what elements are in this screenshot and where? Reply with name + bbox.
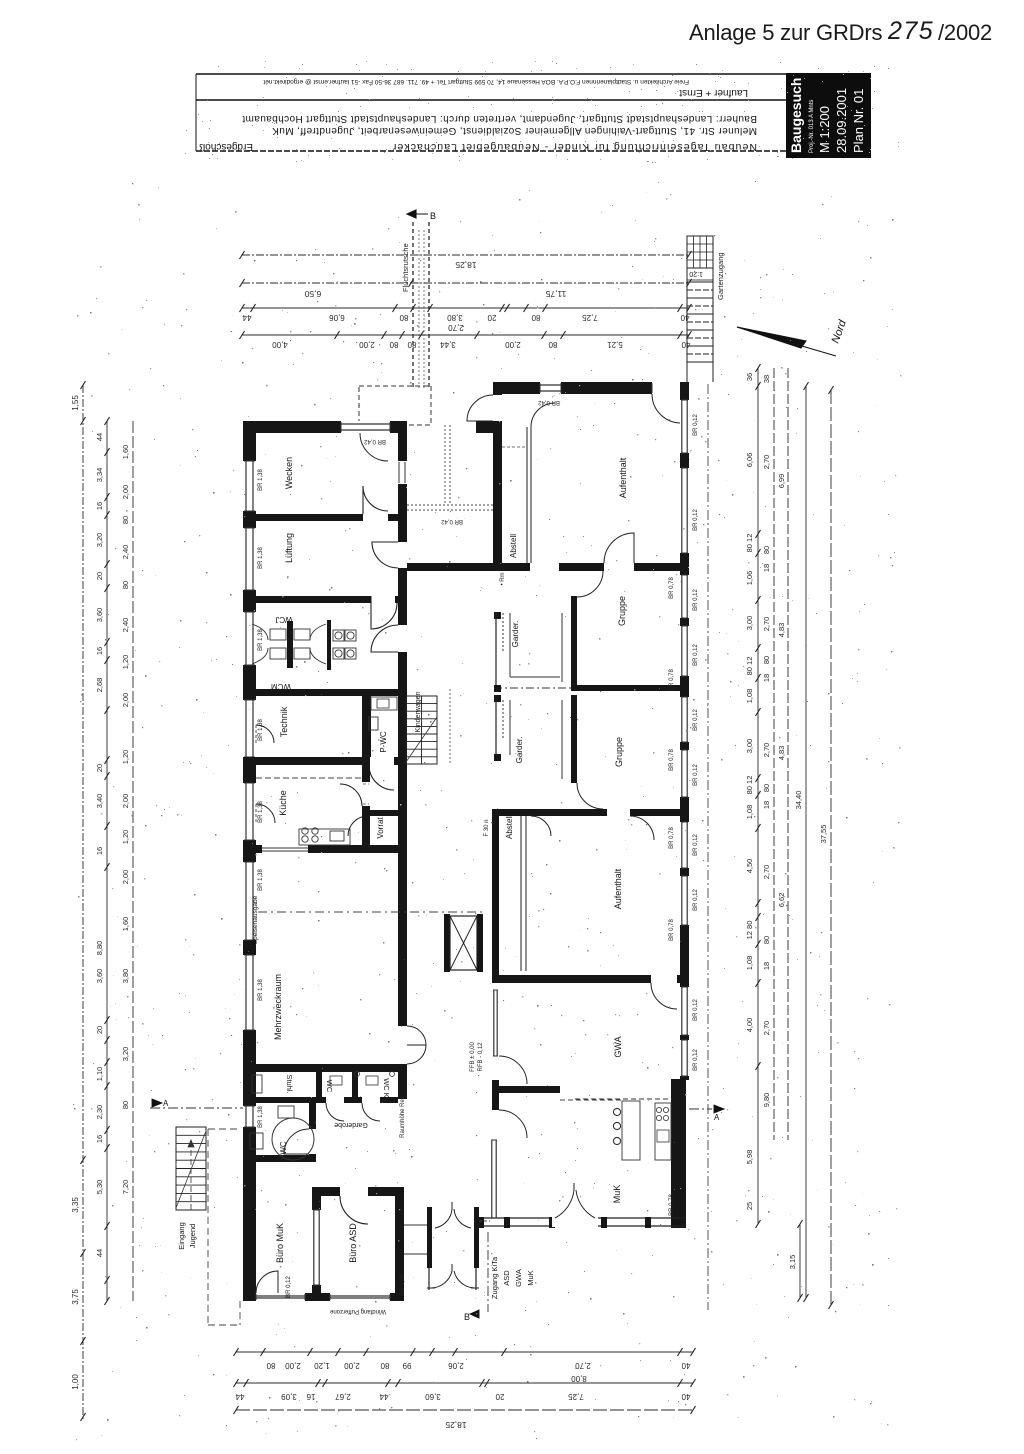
svg-text:WCM: WCM — [271, 682, 291, 691]
svg-text:Plan Nr. 01: Plan Nr. 01 — [851, 89, 866, 153]
svg-text:RFB - 0,12: RFB - 0,12 — [478, 1042, 484, 1072]
svg-text:3,15: 3,15 — [788, 1255, 797, 1270]
svg-text:5,21: 5,21 — [607, 340, 623, 349]
svg-text:16: 16 — [95, 847, 104, 855]
svg-text:1,08: 1,08 — [745, 956, 754, 971]
svg-text:3,00: 3,00 — [745, 616, 754, 631]
svg-text:20: 20 — [95, 572, 104, 580]
svg-text:F 30 n: F 30 n — [484, 819, 490, 836]
svg-text:20: 20 — [95, 764, 104, 772]
svg-text:80: 80 — [548, 340, 557, 349]
svg-text:2,70: 2,70 — [762, 455, 771, 470]
svg-text:Windfang Pufferzone: Windfang Pufferzone — [329, 1308, 386, 1314]
svg-text:2,00: 2,00 — [505, 340, 521, 349]
svg-text:MuK: MuK — [612, 1185, 622, 1204]
svg-text:6,50: 6,50 — [304, 289, 321, 299]
svg-text:2,70: 2,70 — [448, 323, 464, 332]
svg-text:8,00: 8,00 — [571, 1374, 587, 1383]
svg-text:2,00: 2,00 — [121, 485, 130, 500]
svg-text:Vorrat: Vorrat — [376, 817, 385, 839]
svg-text:Eingang: Eingang — [177, 1222, 186, 1250]
svg-text:Meluner Str. 41, Stuttgart-Vai: Meluner Str. 41, Stuttgart-Vaihingen All… — [272, 125, 757, 136]
svg-text:Garderobe: Garderobe — [334, 1121, 368, 1128]
svg-text:6,06: 6,06 — [745, 453, 754, 468]
svg-text:80: 80 — [762, 936, 771, 944]
svg-text:36: 36 — [745, 373, 754, 381]
svg-text:Aufenthalt: Aufenthalt — [618, 457, 628, 498]
svg-text:Speisenausgabe: Speisenausgabe — [252, 895, 259, 944]
svg-text:Büro MuK: Büro MuK — [275, 1223, 285, 1263]
svg-text:80: 80 — [407, 340, 416, 349]
svg-text:18: 18 — [762, 801, 771, 809]
svg-text:2,40: 2,40 — [121, 618, 130, 633]
svg-text:BR 0,12: BR 0,12 — [693, 889, 699, 911]
svg-text:Bauherr: Landeshauptstadt Stut: Bauherr: Landeshauptstadt Stuttgart, Jug… — [242, 113, 757, 124]
svg-text:BR 0,12: BR 0,12 — [693, 764, 699, 786]
svg-text:3,60: 3,60 — [425, 1392, 441, 1401]
svg-text:80: 80 — [399, 313, 408, 322]
svg-text:1,06: 1,06 — [745, 571, 754, 586]
svg-text:Garder.: Garder. — [511, 621, 520, 648]
svg-text:11,75: 11,75 — [545, 289, 566, 299]
svg-text:2,70: 2,70 — [575, 1361, 591, 1370]
svg-text:BR 0,42: BR 0,42 — [364, 438, 386, 444]
svg-text:40: 40 — [681, 340, 690, 349]
svg-text:40: 40 — [681, 1392, 690, 1401]
svg-text:4,00: 4,00 — [272, 340, 288, 349]
svg-text:99: 99 — [402, 1361, 411, 1370]
svg-text:7,25: 7,25 — [568, 1392, 584, 1401]
svg-text:P-WC: P-WC — [379, 731, 388, 753]
svg-text:A: A — [163, 1099, 169, 1108]
svg-text:MuK: MuK — [526, 1270, 535, 1285]
svg-text:2,68: 2,68 — [95, 678, 104, 693]
svg-text:4,50: 4,50 — [745, 859, 754, 874]
svg-text:3,34: 3,34 — [95, 468, 104, 483]
svg-text:BR 0,78: BR 0,78 — [669, 577, 675, 599]
svg-text:3,00: 3,00 — [745, 739, 754, 754]
svg-text:BR 1,38: BR 1,38 — [258, 1106, 264, 1128]
svg-text:3,60: 3,60 — [95, 608, 104, 623]
svg-text:7,20: 7,20 — [121, 1180, 130, 1195]
svg-text:Lüftung: Lüftung — [284, 533, 294, 563]
svg-text:/2002: /2002 — [938, 20, 992, 45]
svg-text:3,75: 3,75 — [71, 1289, 80, 1305]
svg-text:1,20: 1,20 — [121, 830, 130, 845]
svg-text:38: 38 — [762, 375, 771, 383]
svg-text:44: 44 — [242, 313, 251, 322]
svg-text:3,20: 3,20 — [95, 533, 104, 548]
svg-text:B: B — [430, 211, 436, 221]
svg-text:Garder.: Garder. — [515, 737, 524, 764]
svg-text:Anlage 5 zur GRDrs: Anlage 5 zur GRDrs — [689, 20, 882, 45]
svg-text:BR 0,12: BR 0,12 — [286, 1276, 292, 1298]
svg-text:BR 0,78: BR 0,78 — [669, 919, 675, 941]
svg-text:WCJ: WCJ — [275, 615, 292, 624]
svg-text:80: 80 — [531, 313, 540, 322]
svg-text:5,98: 5,98 — [745, 1150, 754, 1165]
svg-text:Büro ASD: Büro ASD — [348, 1223, 358, 1263]
svg-text:BR 0,12: BR 0,12 — [693, 589, 699, 611]
svg-text:3,40: 3,40 — [95, 794, 104, 809]
svg-text:1,55: 1,55 — [71, 395, 80, 411]
svg-text:25: 25 — [745, 1202, 754, 1210]
svg-text:BR 0,12: BR 0,12 — [693, 709, 699, 731]
svg-text:Kinderwagen: Kinderwagen — [415, 691, 422, 732]
svg-text:18,25: 18,25 — [445, 1420, 467, 1430]
svg-text:BR 0,78: BR 0,78 — [669, 827, 675, 849]
svg-text:BR 0,78: BR 0,78 — [669, 1194, 675, 1216]
svg-text:8,80: 8,80 — [95, 941, 104, 956]
svg-text:12 80: 12 80 — [745, 921, 754, 940]
svg-text:BR 0,78: BR 0,78 — [669, 749, 675, 771]
svg-text:BR 0,42: BR 0,42 — [441, 518, 463, 524]
svg-text:Proj.-Nr. 013 A Mnts: Proj.-Nr. 013 A Mnts — [809, 100, 815, 153]
svg-text:4,83: 4,83 — [777, 623, 786, 638]
svg-text:Baugesuch: Baugesuch — [788, 78, 804, 153]
svg-text:1,20: 1,20 — [121, 750, 130, 765]
svg-text:3,20: 3,20 — [121, 1047, 130, 1062]
svg-text:M 1:200: M 1:200 — [817, 106, 832, 153]
svg-text:80: 80 — [762, 656, 771, 664]
svg-text:34,40: 34,40 — [794, 791, 803, 810]
svg-text:Abstell: Abstell — [505, 815, 514, 839]
svg-text:80: 80 — [380, 1361, 389, 1370]
svg-text:Freie Architekten u. Stadtplan: Freie Architekten u. Stadtplanerinnen F.… — [263, 78, 689, 85]
svg-text:20: 20 — [487, 313, 496, 322]
svg-text:2,00: 2,00 — [121, 794, 130, 809]
svg-text:2,70: 2,70 — [762, 865, 771, 880]
svg-text:16: 16 — [95, 1135, 104, 1143]
svg-text:1,20: 1,20 — [121, 655, 130, 670]
svg-text:80: 80 — [121, 516, 130, 524]
svg-text:28.09.2001: 28.09.2001 — [834, 88, 849, 153]
svg-text:Stuhl.: Stuhl. — [285, 1074, 294, 1093]
svg-text:BR 1,38: BR 1,38 — [258, 719, 264, 741]
svg-text:3,60: 3,60 — [95, 969, 104, 984]
svg-text:Gruppe: Gruppe — [614, 737, 624, 767]
svg-text:18: 18 — [762, 564, 771, 572]
svg-text:WC: WC — [325, 1080, 334, 1093]
svg-text:BR 1,38: BR 1,38 — [400, 1274, 406, 1296]
svg-text:1,00: 1,00 — [71, 1374, 80, 1390]
svg-text:16: 16 — [95, 647, 104, 655]
svg-text:BR 0,12: BR 0,12 — [693, 1049, 699, 1071]
svg-text:BR 1,38: BR 1,38 — [258, 979, 264, 1001]
svg-text:GWA: GWA — [613, 1036, 623, 1057]
svg-text:Neubau Tageseinrichtung für Ki: Neubau Tageseinrichtung für Kinder - Neu… — [392, 141, 757, 153]
svg-text:40: 40 — [681, 1361, 690, 1370]
svg-text:BR 1,38: BR 1,38 — [258, 629, 264, 651]
svg-text:BR 0,12: BR 0,12 — [693, 999, 699, 1021]
svg-text:275: 275 — [887, 17, 934, 45]
svg-text:80: 80 — [762, 784, 771, 792]
svg-text:80: 80 — [389, 340, 398, 349]
svg-text:BR 0,12: BR 0,12 — [693, 414, 699, 436]
svg-text:44: 44 — [95, 433, 104, 441]
svg-text:BR 0,78: BR 0,78 — [669, 669, 675, 691]
svg-text:2,00: 2,00 — [121, 870, 130, 885]
svg-text:1,60: 1,60 — [121, 445, 130, 460]
svg-text:Küche: Küche — [278, 790, 288, 816]
svg-text:Technik: Technik — [279, 706, 289, 737]
svg-text:BR 1,38: BR 1,38 — [258, 801, 264, 823]
svg-text:5,30: 5,30 — [95, 1180, 104, 1195]
svg-text:Gruppe: Gruppe — [617, 596, 627, 626]
svg-text:1,08: 1,08 — [745, 805, 754, 820]
svg-text:FFB ± 0,00: FFB ± 0,00 — [470, 1042, 476, 1072]
svg-text:2,00: 2,00 — [344, 1361, 360, 1370]
svg-text:6,62: 6,62 — [777, 893, 786, 908]
svg-text:44: 44 — [235, 1392, 244, 1401]
svg-text:44: 44 — [379, 1392, 388, 1401]
svg-text:2,30: 2,30 — [95, 1105, 104, 1120]
svg-text:B: B — [464, 1312, 470, 1322]
svg-text:1,10: 1,10 — [95, 1067, 104, 1082]
svg-text:16: 16 — [306, 1392, 315, 1401]
svg-text:2,70: 2,70 — [762, 617, 771, 632]
svg-text:Fluchtsrutsche: Fluchtsrutsche — [401, 243, 410, 292]
svg-text:1,60: 1,60 — [121, 917, 130, 932]
svg-text:Wecken: Wecken — [284, 457, 294, 489]
svg-text:1,20: 1,20 — [314, 1361, 330, 1370]
svg-text:80: 80 — [121, 581, 130, 589]
svg-text:Abstell: Abstell — [509, 534, 518, 558]
svg-text:2,40: 2,40 — [121, 545, 130, 560]
svg-text:Gartenzugang: Gartenzugang — [716, 252, 725, 300]
svg-text:6,99: 6,99 — [777, 474, 786, 489]
svg-text:Zugang KiTa: Zugang KiTa — [490, 1256, 499, 1299]
svg-text:BR 1,38: BR 1,38 — [258, 869, 264, 891]
svg-text:WC: WC — [279, 1141, 288, 1155]
svg-text:2,70: 2,70 — [762, 1021, 771, 1036]
svg-text:2,70: 2,70 — [762, 743, 771, 758]
svg-text:A: A — [714, 1113, 720, 1122]
svg-text:3,80: 3,80 — [447, 313, 463, 322]
svg-text:4,00: 4,00 — [745, 1018, 754, 1033]
svg-text:3,35: 3,35 — [71, 1197, 80, 1213]
svg-text:2,00: 2,00 — [285, 1361, 301, 1370]
svg-text:1:20: 1:20 — [689, 270, 703, 277]
svg-text:BR 1,38: BR 1,38 — [258, 469, 264, 491]
svg-text:18: 18 — [762, 674, 771, 682]
svg-text:20: 20 — [95, 1026, 104, 1034]
svg-text:ASD: ASD — [502, 1270, 511, 1286]
svg-text:16: 16 — [95, 502, 104, 510]
svg-text:BR 0,12: BR 0,12 — [693, 644, 699, 666]
svg-text:3,44: 3,44 — [440, 340, 456, 349]
svg-text:3,80: 3,80 — [121, 969, 130, 984]
svg-text:4,83: 4,83 — [777, 746, 786, 761]
svg-text:1,08: 1,08 — [745, 689, 754, 704]
svg-text:6,06: 6,06 — [329, 313, 345, 322]
svg-text:7,25: 7,25 — [582, 313, 598, 322]
svg-text:WC K: WC K — [382, 1078, 391, 1098]
svg-text:2,06: 2,06 — [448, 1361, 464, 1370]
svg-text:20: 20 — [495, 1392, 504, 1401]
svg-text:BR 1,38: BR 1,38 — [258, 547, 264, 569]
svg-text:37,55: 37,55 — [819, 825, 828, 844]
svg-text:Laufner + Ernst: Laufner + Ernst — [679, 87, 748, 98]
svg-text:18,25: 18,25 — [455, 260, 477, 270]
svg-text:44: 44 — [95, 1249, 104, 1257]
svg-text:GWA: GWA — [514, 1269, 523, 1287]
svg-text:80 12: 80 12 — [745, 776, 754, 795]
svg-text:80: 80 — [121, 1101, 130, 1109]
svg-text:80: 80 — [266, 1361, 275, 1370]
svg-text:2,00: 2,00 — [121, 693, 130, 708]
svg-text:80 12: 80 12 — [745, 534, 754, 553]
svg-text:18: 18 — [762, 962, 771, 970]
svg-text:BR 0,12: BR 0,12 — [693, 834, 699, 856]
svg-text:BR 0,42: BR 0,42 — [538, 399, 560, 405]
svg-text:BR 0,12: BR 0,12 — [693, 509, 699, 531]
svg-text:2,00: 2,00 — [359, 340, 375, 349]
svg-text:Raumhöhe Res: Raumhöhe Res — [400, 1096, 406, 1138]
svg-text:• Rm: • Rm — [500, 572, 506, 585]
svg-text:2,67: 2,67 — [335, 1392, 351, 1401]
svg-text:9,80: 9,80 — [762, 1093, 771, 1108]
svg-text:80: 80 — [762, 546, 771, 554]
svg-text:Erdgeschoß: Erdgeschoß — [199, 141, 253, 152]
svg-text:3,09: 3,09 — [281, 1392, 297, 1401]
svg-text:80 12: 80 12 — [745, 657, 754, 676]
svg-text:Aufenthalt: Aufenthalt — [613, 868, 623, 909]
svg-text:Jugend: Jugend — [188, 1224, 197, 1249]
